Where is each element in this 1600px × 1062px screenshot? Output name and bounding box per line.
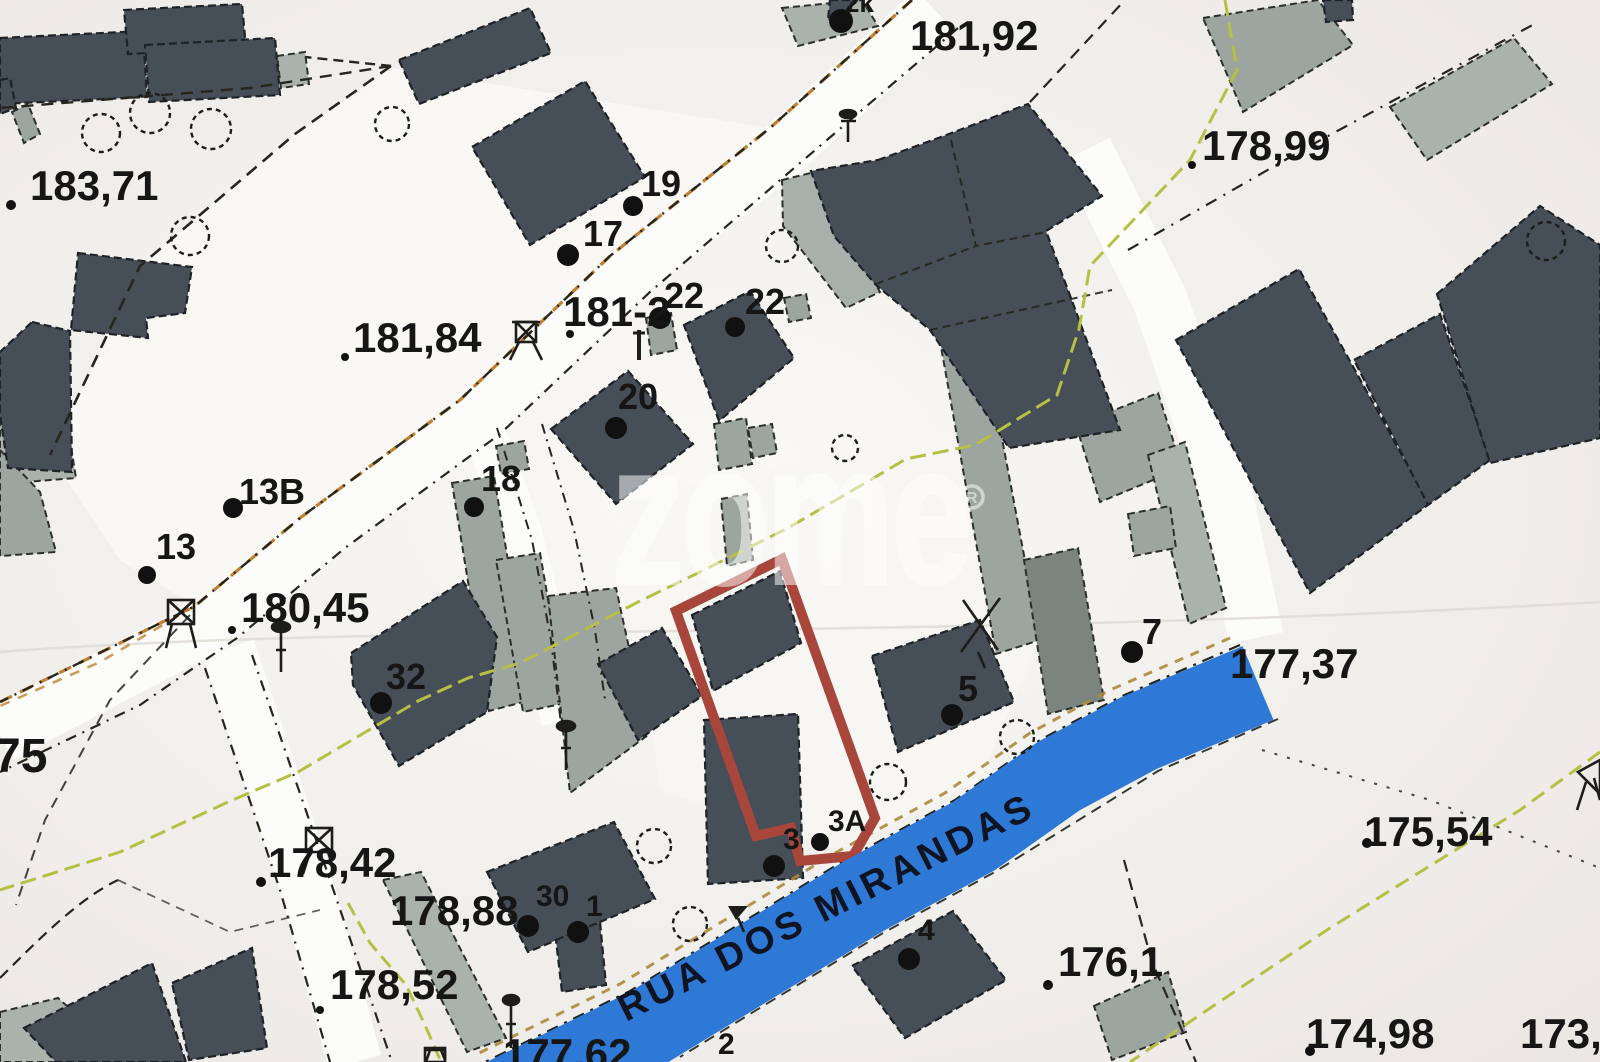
svg-text:173,1: 173,1: [1520, 1010, 1600, 1057]
svg-text:19: 19: [641, 163, 681, 204]
svg-text:2: 2: [718, 1028, 735, 1061]
svg-text:183,71: 183,71: [30, 162, 158, 209]
svg-text:zome: zome: [612, 402, 969, 626]
svg-text:22: 22: [664, 275, 704, 316]
svg-text:30: 30: [536, 880, 569, 913]
svg-text:3A: 3A: [828, 805, 866, 838]
svg-text:177,37: 177,37: [1230, 640, 1358, 687]
svg-text:75: 75: [0, 730, 47, 783]
svg-text:7: 7: [1142, 611, 1162, 652]
svg-text:3: 3: [783, 823, 800, 856]
svg-text:1: 1: [586, 890, 603, 923]
svg-text:174,98: 174,98: [1306, 1010, 1434, 1057]
svg-text:2k: 2k: [845, 0, 874, 18]
svg-text:R: R: [966, 490, 978, 507]
svg-text:4: 4: [918, 914, 935, 947]
svg-text:178,88: 178,88: [390, 887, 518, 934]
svg-text:18: 18: [481, 458, 521, 499]
svg-text:181,84: 181,84: [353, 314, 482, 361]
svg-text:175,54: 175,54: [1364, 808, 1493, 855]
svg-text:17: 17: [583, 213, 623, 254]
svg-text:22: 22: [745, 281, 785, 322]
svg-text:32: 32: [386, 656, 426, 697]
svg-text:5: 5: [958, 668, 978, 709]
svg-text:178,99: 178,99: [1202, 122, 1330, 169]
svg-text:177,62: 177,62: [503, 1030, 631, 1062]
svg-text:13B: 13B: [239, 471, 305, 512]
svg-text:180,45: 180,45: [241, 584, 369, 631]
svg-text:176,1: 176,1: [1058, 938, 1163, 985]
svg-text:178,42: 178,42: [268, 839, 396, 886]
svg-text:181-2: 181-2: [563, 288, 670, 335]
svg-text:181,92: 181,92: [910, 12, 1038, 59]
svg-text:178,52: 178,52: [330, 961, 458, 1008]
svg-text:13: 13: [156, 526, 196, 567]
